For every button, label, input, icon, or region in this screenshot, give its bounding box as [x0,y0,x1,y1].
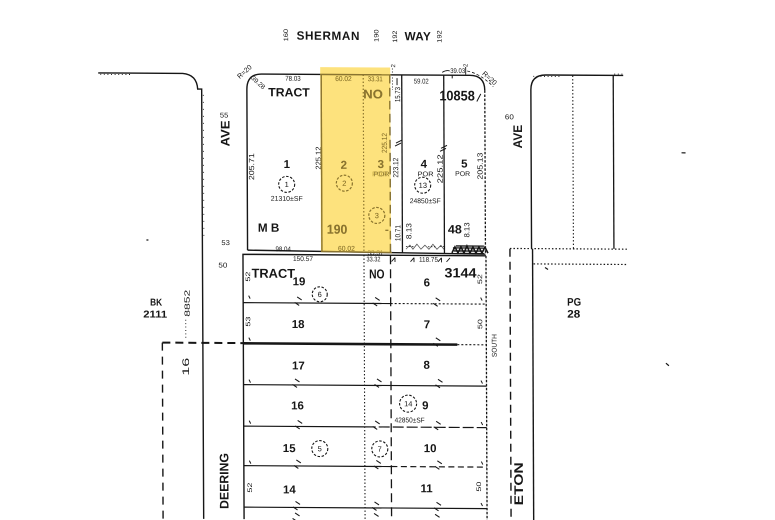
svg-text:DEERING: DEERING [217,453,231,509]
svg-text:5: 5 [461,158,468,170]
svg-text:14: 14 [283,484,296,496]
svg-text:16: 16 [291,400,304,412]
svg-text:11: 11 [420,483,433,495]
svg-text:BK: BK [150,298,163,309]
svg-text:14: 14 [404,399,412,408]
svg-text:60.02: 60.02 [335,76,352,83]
svg-text:6: 6 [424,277,430,289]
svg-text:52: 52 [477,274,484,285]
svg-text:7: 7 [424,319,430,331]
svg-text:2: 2 [342,179,346,188]
svg-text:3144: 3144 [445,265,478,280]
svg-text:3: 3 [378,159,384,171]
svg-text:15: 15 [283,443,296,455]
svg-text:6: 6 [318,290,322,299]
svg-text:50: 50 [218,262,227,269]
svg-text:39.03: 39.03 [450,68,465,75]
svg-text:192: 192 [392,30,399,42]
svg-text:2111: 2111 [143,309,168,320]
svg-text:9: 9 [422,400,428,412]
svg-text:8.13: 8.13 [462,222,471,237]
svg-text:190: 190 [327,222,348,237]
svg-text:205.71: 205.71 [247,153,256,180]
svg-text:NO: NO [369,266,385,281]
svg-text:59.02: 59.02 [414,78,429,85]
svg-text:55: 55 [220,112,229,119]
svg-text:33.32: 33.32 [366,256,380,263]
svg-text:POR: POR [455,171,470,178]
svg-text:60: 60 [505,114,514,121]
svg-text:118.75: 118.75 [419,257,438,264]
svg-text:8.13: 8.13 [404,223,413,239]
svg-text:28: 28 [567,309,580,321]
svg-text:18: 18 [292,319,305,331]
svg-text:TRACT: TRACT [268,85,310,99]
svg-text:50: 50 [477,319,484,330]
svg-text:2: 2 [341,160,347,172]
svg-text:150.57: 150.57 [293,256,313,263]
svg-text:223.12: 223.12 [391,158,400,178]
svg-text:225.12: 225.12 [380,133,389,153]
svg-text:1: 1 [285,180,289,189]
svg-text:PG: PG [567,297,581,309]
svg-text:190: 190 [374,29,381,42]
svg-text:1: 1 [284,159,291,171]
svg-text:WAY: WAY [405,29,432,43]
svg-text:7: 7 [378,445,382,454]
svg-text:8852: 8852 [183,290,192,317]
svg-text:TRACT: TRACT [252,266,296,281]
svg-text:17: 17 [292,360,305,372]
svg-text:4: 4 [421,159,428,171]
svg-text:52: 52 [247,482,254,493]
svg-text:16: 16 [181,358,192,376]
svg-text:50: 50 [476,481,483,492]
svg-text:13: 13 [419,181,427,190]
svg-text:24850±SF: 24850±SF [410,198,441,205]
svg-text:ETON: ETON [512,462,526,505]
svg-text:10.71: 10.71 [393,225,402,241]
svg-text:98.04: 98.04 [275,246,291,253]
svg-text:M B: M B [258,221,280,235]
svg-text:5: 5 [318,444,322,453]
svg-text:POR: POR [374,171,390,178]
svg-text:10858: 10858 [439,87,475,103]
svg-text:42850±SF: 42850±SF [395,417,425,424]
svg-text:15.73: 15.73 [393,87,402,102]
svg-text:53: 53 [245,316,252,327]
svg-text:NO: NO [363,87,383,101]
svg-text:8: 8 [423,360,430,372]
svg-text:3: 3 [375,211,379,220]
svg-text:205.13: 205.13 [476,153,485,180]
svg-text:SOUTH: SOUTH [492,334,499,357]
svg-text:160: 160 [283,28,290,41]
svg-text:78.03: 78.03 [285,76,301,83]
svg-text:48: 48 [448,222,462,236]
svg-text:225.12: 225.12 [436,154,445,183]
svg-text:10: 10 [424,443,437,455]
svg-text:SHERMAN: SHERMAN [297,29,361,43]
svg-text:19: 19 [293,276,306,288]
svg-text:192: 192 [437,30,444,43]
svg-text:52: 52 [245,271,252,282]
svg-text:60.02: 60.02 [338,246,355,253]
svg-text:AVE: AVE [218,120,232,146]
svg-text:AVE: AVE [511,125,525,149]
svg-text:53: 53 [221,240,230,247]
svg-text:21310±SF: 21310±SF [271,196,303,203]
svg-text:33.31: 33.31 [368,76,383,83]
